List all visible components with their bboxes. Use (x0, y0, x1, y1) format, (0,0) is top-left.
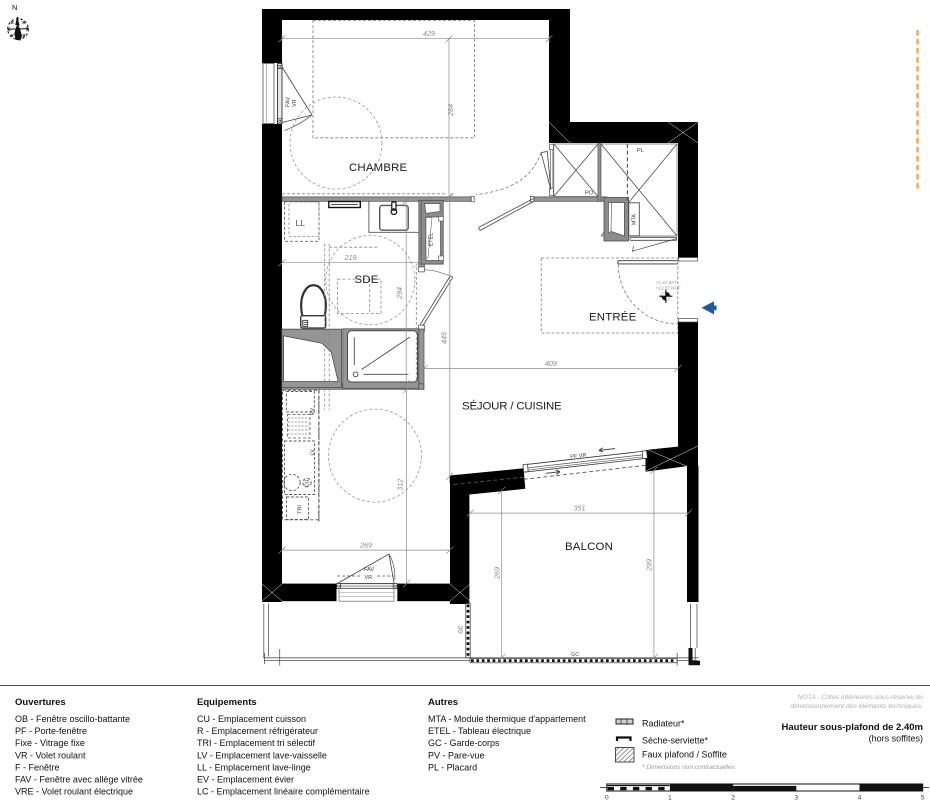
svg-text:LL: LL (296, 218, 306, 228)
svg-text:(hors soffites): (hors soffites) (869, 734, 923, 744)
svg-text:5: 5 (921, 795, 925, 800)
svg-text:312: 312 (395, 479, 404, 491)
svg-text:429: 429 (423, 29, 435, 38)
svg-text:CU - Emplacement cuisson: CU - Emplacement cuisson (197, 714, 306, 724)
svg-text:BALCON: BALCON (565, 541, 613, 553)
svg-text:FAV: FAV (364, 567, 374, 573)
svg-text:R - Emplacement réfrigérateur: R - Emplacement réfrigérateur (197, 726, 318, 736)
svg-text:219: 219 (344, 253, 357, 262)
svg-text:* Dimensions non contractuelle: * Dimensions non contractuelles (642, 764, 736, 771)
svg-text:Radiateur*: Radiateur* (642, 719, 685, 729)
svg-text:3: 3 (794, 795, 798, 800)
svg-text:PL: PL (637, 148, 644, 154)
svg-text:2: 2 (731, 795, 735, 800)
svg-text:4: 4 (858, 795, 862, 800)
svg-text:ETEL - Tableau électrique: ETEL - Tableau électrique (428, 726, 531, 736)
svg-text:LL - Emplacement lave-linge: LL - Emplacement lave-linge (197, 762, 311, 772)
svg-text:GC - Garde-corps: GC - Garde-corps (428, 738, 500, 748)
svg-text:284: 284 (446, 104, 455, 117)
svg-text:PV - Pare-vue: PV - Pare-vue (428, 750, 485, 760)
svg-text:EV - Emplacement évier: EV - Emplacement évier (197, 775, 294, 785)
svg-text:SDE: SDE (355, 274, 379, 286)
svg-text:TRI - Emplacement tri sélectif: TRI - Emplacement tri sélectif (197, 738, 316, 748)
svg-text:351: 351 (574, 504, 586, 513)
svg-text:LV: LV (310, 449, 316, 456)
svg-text:ETEL: ETEL (429, 233, 435, 247)
svg-text:dimensionnement des éléments t: dimensionnement des éléments techniques. (790, 703, 923, 710)
svg-text:PL - Placard: PL - Placard (428, 762, 477, 772)
svg-text:N: N (12, 3, 17, 12)
svg-text:GC: GC (459, 625, 465, 633)
svg-text:TRI: TRI (298, 505, 304, 514)
svg-text:Autres: Autres (428, 697, 458, 708)
svg-text:VRE - Volet roulant électrique: VRE - Volet roulant électrique (15, 787, 133, 797)
svg-text:FAV - Fenêtre avec allège vitr: FAV - Fenêtre avec allège vitrée (15, 775, 143, 785)
svg-text:ENTRÉE: ENTRÉE (589, 311, 637, 324)
svg-text:LV - Emplacement lave-vaissell: LV - Emplacement lave-vaisselle (197, 750, 327, 760)
svg-text:Fixe - Vitrage fixe: Fixe - Vitrage fixe (15, 738, 85, 748)
svg-text:EV: EV (310, 408, 316, 416)
svg-text:FAV: FAV (286, 97, 292, 107)
svg-text:299: 299 (645, 559, 654, 572)
svg-text:Hauteur sous-plafond de 2.40m: Hauteur sous-plafond de 2.40m (782, 722, 923, 733)
svg-text:0: 0 (605, 795, 609, 800)
svg-text:Faux plafond / Soffite: Faux plafond / Soffite (642, 750, 727, 760)
svg-text:VR: VR (292, 99, 298, 107)
svg-text:269: 269 (359, 541, 372, 550)
svg-text:CHAMBRE: CHAMBRE (349, 162, 408, 174)
svg-text:GC: GC (571, 652, 579, 658)
svg-text:409: 409 (545, 359, 557, 368)
svg-text:MTA: MTA (632, 214, 638, 226)
svg-text:294: 294 (395, 287, 404, 300)
svg-text:CU: CU (305, 480, 311, 488)
svg-text:PF - Porte-fenêtre: PF - Porte-fenêtre (15, 726, 87, 736)
svg-text:SÉJOUR / CUISINE: SÉJOUR / CUISINE (462, 400, 562, 413)
svg-text:269: 269 (492, 567, 501, 580)
svg-text:MTA - Module thermique d'appar: MTA - Module thermique d'appartement (428, 714, 586, 724)
svg-text:VR: VR (365, 575, 373, 581)
svg-text:PO: PO (585, 191, 594, 197)
svg-text:Ouvertures: Ouvertures (15, 697, 66, 708)
svg-text:+0.32 BAT: +0.32 BAT (656, 280, 679, 285)
svg-text:+13.57 NGF: +13.57 NGF (656, 286, 682, 291)
svg-text:VR - Volet roulant: VR - Volet roulant (15, 750, 86, 760)
svg-text:Sèche-serviette*: Sèche-serviette* (642, 736, 709, 746)
svg-text:F - Fenêtre: F - Fenêtre (15, 762, 60, 772)
svg-text:445: 445 (439, 331, 448, 344)
svg-text:NOTA : Côtes intérieures sous: NOTA : Côtes intérieures sous réserve du (798, 694, 924, 701)
svg-text:Equipements: Equipements (197, 697, 257, 708)
svg-text:1: 1 (668, 795, 672, 800)
svg-text:LC - Emplacement linéaire comp: LC - Emplacement linéaire complémentaire (197, 787, 370, 797)
svg-text:OB - Fenêtre oscillo-battante: OB - Fenêtre oscillo-battante (15, 714, 130, 724)
